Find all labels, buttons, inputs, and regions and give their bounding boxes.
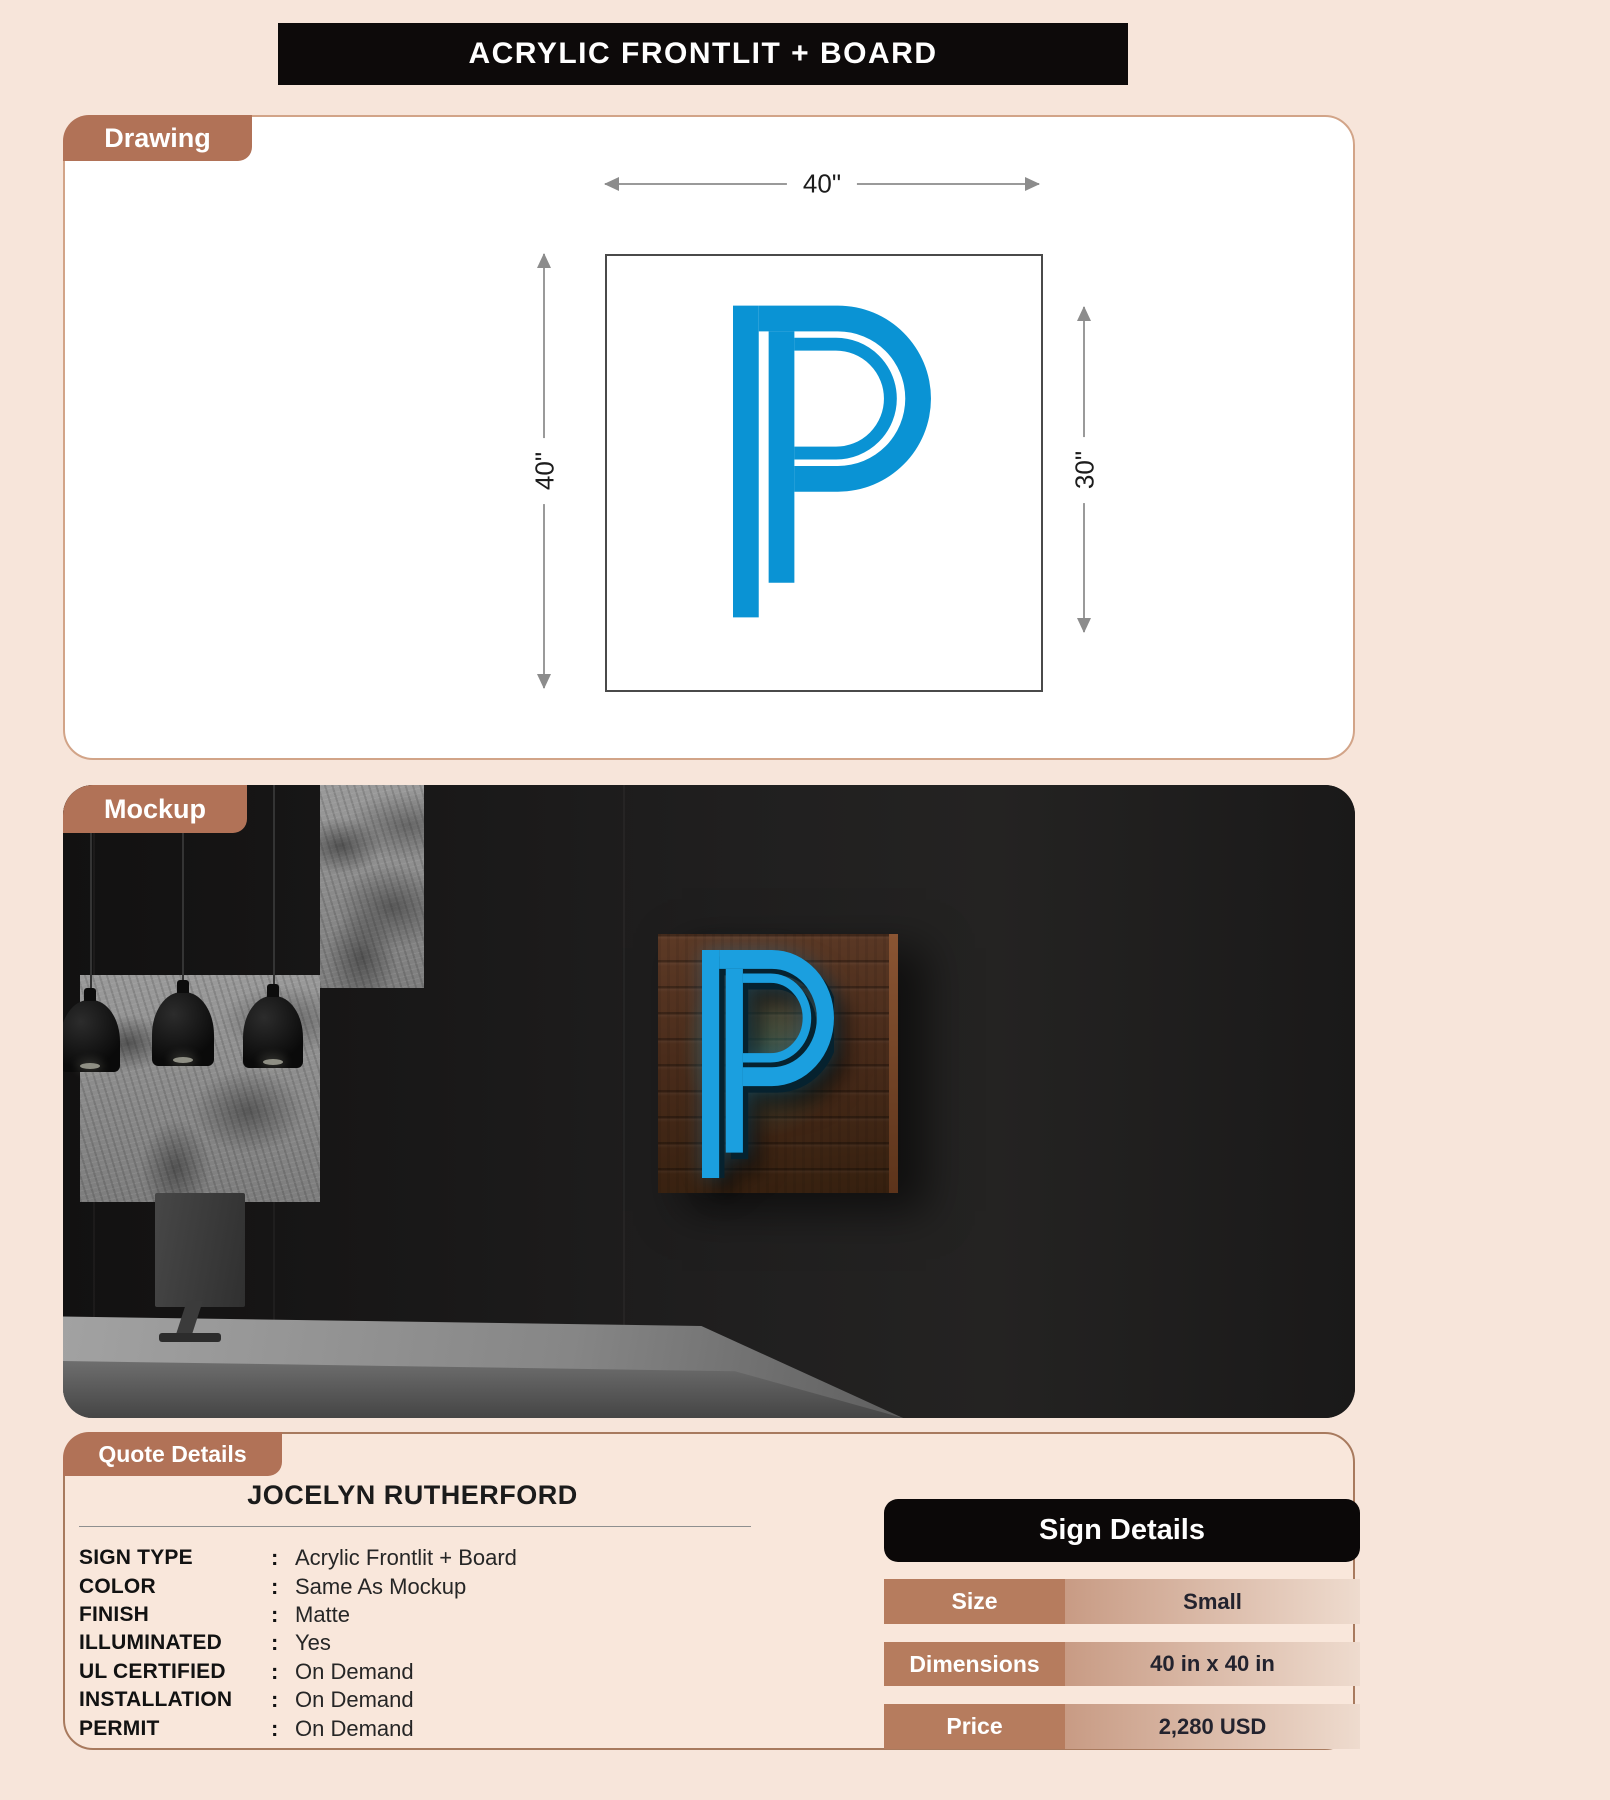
drawing-section-tag: Drawing: [63, 115, 252, 161]
spec-row: FINISH : Matte: [79, 1601, 779, 1629]
row-value: 40 in x 40 in: [1065, 1642, 1360, 1686]
spec-row: INSTALLATION : On Demand: [79, 1686, 779, 1714]
row-label: Size: [884, 1579, 1065, 1624]
dimension-letter-height-label: 30": [1070, 436, 1101, 502]
mockup-panel: Mockup: [63, 785, 1355, 1418]
sign-details-row-size: Size Small: [884, 1579, 1360, 1624]
spec-value: On Demand: [295, 1659, 414, 1685]
spec-value: On Demand: [295, 1716, 414, 1742]
monitor: [155, 1193, 245, 1307]
dimension-height-label: 40": [530, 438, 561, 504]
spec-separator: :: [271, 1687, 295, 1713]
spec-label: INSTALLATION: [79, 1688, 271, 1712]
spec-label: ILLUMINATED: [79, 1631, 271, 1655]
arrowhead-down-icon: [1077, 618, 1091, 633]
spec-label: PERMIT: [79, 1717, 271, 1741]
arrowhead-right-icon: [1025, 177, 1040, 191]
mockup-section-tag: Mockup: [63, 785, 247, 833]
quote-section-tag: Quote Details: [63, 1432, 282, 1476]
arrowhead-left-icon: [604, 177, 619, 191]
spec-label: UL CERTIFIED: [79, 1660, 271, 1684]
sign-details-row-dimensions: Dimensions 40 in x 40 in: [884, 1642, 1360, 1686]
spec-label: COLOR: [79, 1575, 271, 1599]
arrowhead-up-icon: [1077, 306, 1091, 321]
pendant-lamp: [243, 996, 303, 1068]
arrowhead-up-icon: [537, 253, 551, 268]
spec-value: On Demand: [295, 1687, 414, 1713]
spec-row: PERMIT : On Demand: [79, 1714, 779, 1742]
board-side-edge: [889, 934, 898, 1193]
spec-separator: :: [271, 1574, 295, 1600]
lamp-cord: [273, 785, 275, 997]
page-title: ACRYLIC FRONTLIT + BOARD: [468, 37, 937, 71]
spec-separator: :: [271, 1716, 295, 1742]
spec-value: Same As Mockup: [295, 1574, 466, 1600]
dimension-height: 40": [543, 254, 545, 688]
quote-details-panel: Quote Details JOCELYN RUTHERFORD SIGN TY…: [63, 1432, 1355, 1750]
row-value: 2,280 USD: [1065, 1704, 1360, 1749]
quote-page: ACRYLIC FRONTLIT + BOARD Drawing 40" 40"…: [0, 0, 1610, 1800]
spec-row: COLOR : Same As Mockup: [79, 1572, 779, 1600]
mockup-scene: [63, 785, 1355, 1418]
p-logo-mockup: [702, 950, 834, 1178]
spec-label: FINISH: [79, 1603, 271, 1627]
monitor-foot: [159, 1333, 221, 1342]
sign-details-header: Sign Details: [884, 1499, 1360, 1562]
page-title-bar: ACRYLIC FRONTLIT + BOARD: [278, 23, 1128, 85]
sign-board: [658, 934, 898, 1193]
arrowhead-down-icon: [537, 674, 551, 689]
customer-name: JOCELYN RUTHERFORD: [65, 1480, 760, 1511]
spec-separator: :: [271, 1630, 295, 1656]
row-value: Small: [1065, 1579, 1360, 1624]
spec-separator: :: [271, 1659, 295, 1685]
spec-value: Acrylic Frontlit + Board: [295, 1545, 517, 1571]
dimension-width: 40": [605, 183, 1039, 185]
spec-separator: :: [271, 1545, 295, 1571]
wall-seam: [623, 785, 625, 1418]
spec-row: ILLUMINATED : Yes: [79, 1629, 779, 1657]
sign-details-row-price: Price 2,280 USD: [884, 1704, 1360, 1749]
row-label: Dimensions: [884, 1642, 1065, 1686]
row-label: Price: [884, 1704, 1065, 1749]
spec-label: SIGN TYPE: [79, 1546, 271, 1570]
p-logo-drawing: [733, 305, 931, 618]
concrete-panel: [320, 785, 424, 988]
divider: [79, 1526, 751, 1527]
pendant-lamp: [152, 992, 214, 1066]
spec-value: Yes: [295, 1630, 331, 1656]
dimension-width-label: 40": [787, 168, 857, 199]
spec-list: SIGN TYPE : Acrylic Frontlit + Board COL…: [79, 1544, 779, 1743]
drawing-panel: Drawing 40" 40" 30": [63, 115, 1355, 760]
dimension-letter-height: 30": [1083, 307, 1085, 632]
spec-value: Matte: [295, 1602, 350, 1628]
spec-row: UL CERTIFIED : On Demand: [79, 1658, 779, 1686]
spec-row: SIGN TYPE : Acrylic Frontlit + Board: [79, 1544, 779, 1572]
spec-separator: :: [271, 1602, 295, 1628]
